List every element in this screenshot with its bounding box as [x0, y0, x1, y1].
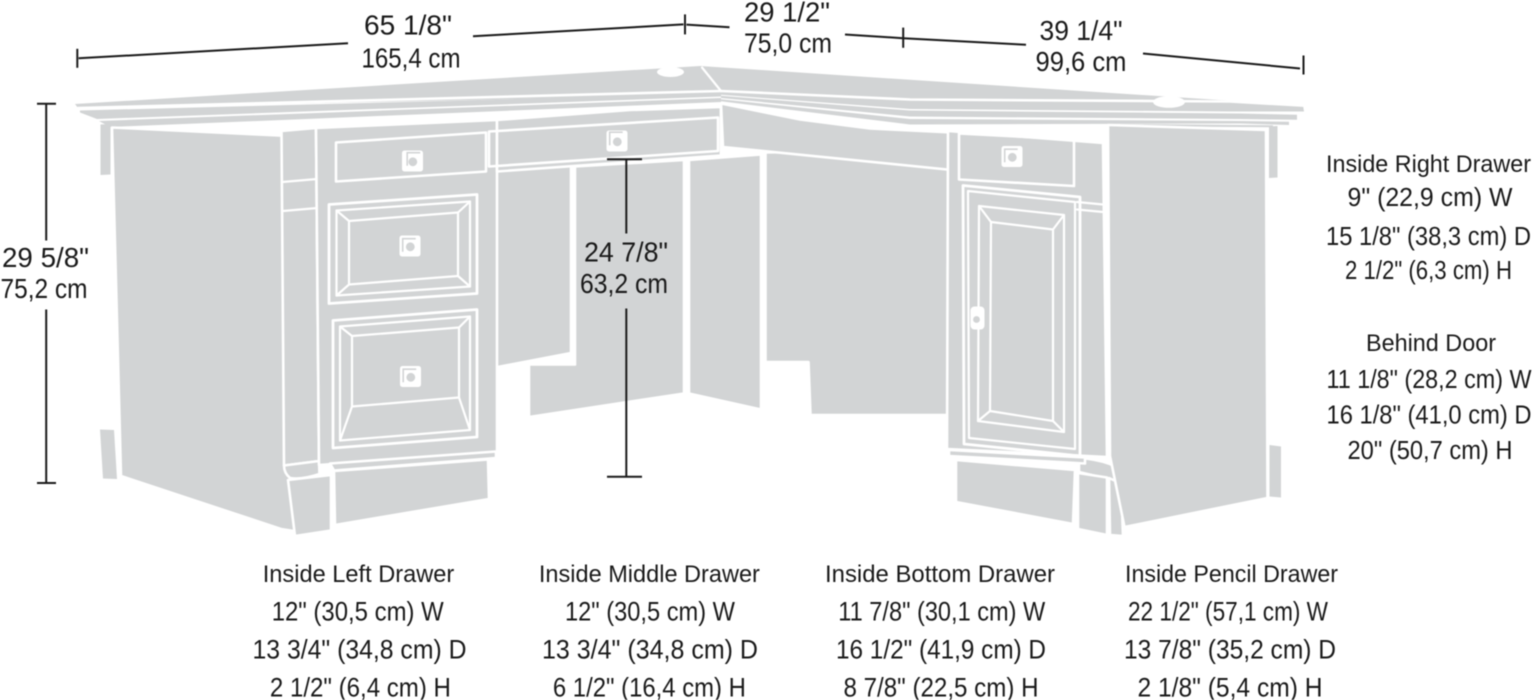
- svg-text:8 7/8" (22,5 cm) H: 8 7/8" (22,5 cm) H: [844, 673, 1039, 700]
- svg-text:Behind Door: Behind Door: [1366, 330, 1496, 357]
- svg-text:15 1/8" (38,3 cm) D: 15 1/8" (38,3 cm) D: [1326, 223, 1531, 251]
- svg-text:11 1/8" (28,2 cm) W: 11 1/8" (28,2 cm) W: [1327, 366, 1532, 394]
- svg-text:20" (50,7 cm) H: 20" (50,7 cm) H: [1348, 437, 1513, 465]
- svg-text:24 7/8": 24 7/8": [584, 237, 668, 268]
- svg-text:13 3/4" (34,8 cm) D: 13 3/4" (34,8 cm) D: [253, 635, 467, 665]
- svg-text:12" (30,5 cm) W: 12" (30,5 cm) W: [565, 597, 735, 627]
- svg-text:99,6 cm: 99,6 cm: [1036, 46, 1127, 77]
- svg-text:39 1/4": 39 1/4": [1040, 15, 1123, 46]
- svg-text:16 1/2" (41,9 cm) D: 16 1/2" (41,9 cm) D: [836, 635, 1046, 665]
- svg-text:75,0 cm: 75,0 cm: [744, 28, 832, 59]
- svg-text:Inside Pencil Drawer: Inside Pencil Drawer: [1125, 561, 1338, 588]
- svg-text:165,4 cm: 165,4 cm: [362, 43, 461, 74]
- svg-text:16 1/8" (41,0 cm) D: 16 1/8" (41,0 cm) D: [1327, 402, 1532, 430]
- svg-text:29 5/8": 29 5/8": [2, 242, 89, 273]
- svg-text:12" (30,5 cm) W: 12" (30,5 cm) W: [272, 597, 444, 627]
- svg-text:65 1/8": 65 1/8": [364, 10, 452, 41]
- svg-text:2 1/8" (5,4 cm) H: 2 1/8" (5,4 cm) H: [1138, 673, 1323, 700]
- svg-text:13 7/8" (35,2 cm) D: 13 7/8" (35,2 cm) D: [1124, 635, 1336, 665]
- svg-text:Inside Bottom Drawer: Inside Bottom Drawer: [825, 561, 1055, 588]
- svg-text:22 1/2" (57,1 cm) W: 22 1/2" (57,1 cm) W: [1128, 597, 1328, 627]
- svg-text:2 1/2" (6,3 cm) H: 2 1/2" (6,3 cm) H: [1345, 257, 1512, 285]
- svg-text:Inside Right Drawer: Inside Right Drawer: [1326, 151, 1531, 178]
- svg-text:2 1/2" (6,4 cm) H: 2 1/2" (6,4 cm) H: [270, 673, 451, 700]
- svg-text:Inside Middle Drawer: Inside Middle Drawer: [539, 561, 760, 588]
- svg-text:63,2 cm: 63,2 cm: [580, 268, 668, 299]
- svg-text:29 1/2": 29 1/2": [744, 0, 830, 28]
- svg-text:75,2 cm: 75,2 cm: [1, 273, 88, 304]
- svg-text:13 3/4" (34,8 cm) D: 13 3/4" (34,8 cm) D: [542, 635, 758, 665]
- svg-text:6 1/2" (16,4 cm) H: 6 1/2" (16,4 cm) H: [553, 673, 746, 700]
- svg-text:Inside Left Drawer: Inside Left Drawer: [263, 561, 455, 588]
- svg-text:9" (22,9 cm) W: 9" (22,9 cm) W: [1348, 184, 1513, 212]
- svg-text:11 7/8" (30,1 cm) W: 11 7/8" (30,1 cm) W: [838, 597, 1045, 627]
